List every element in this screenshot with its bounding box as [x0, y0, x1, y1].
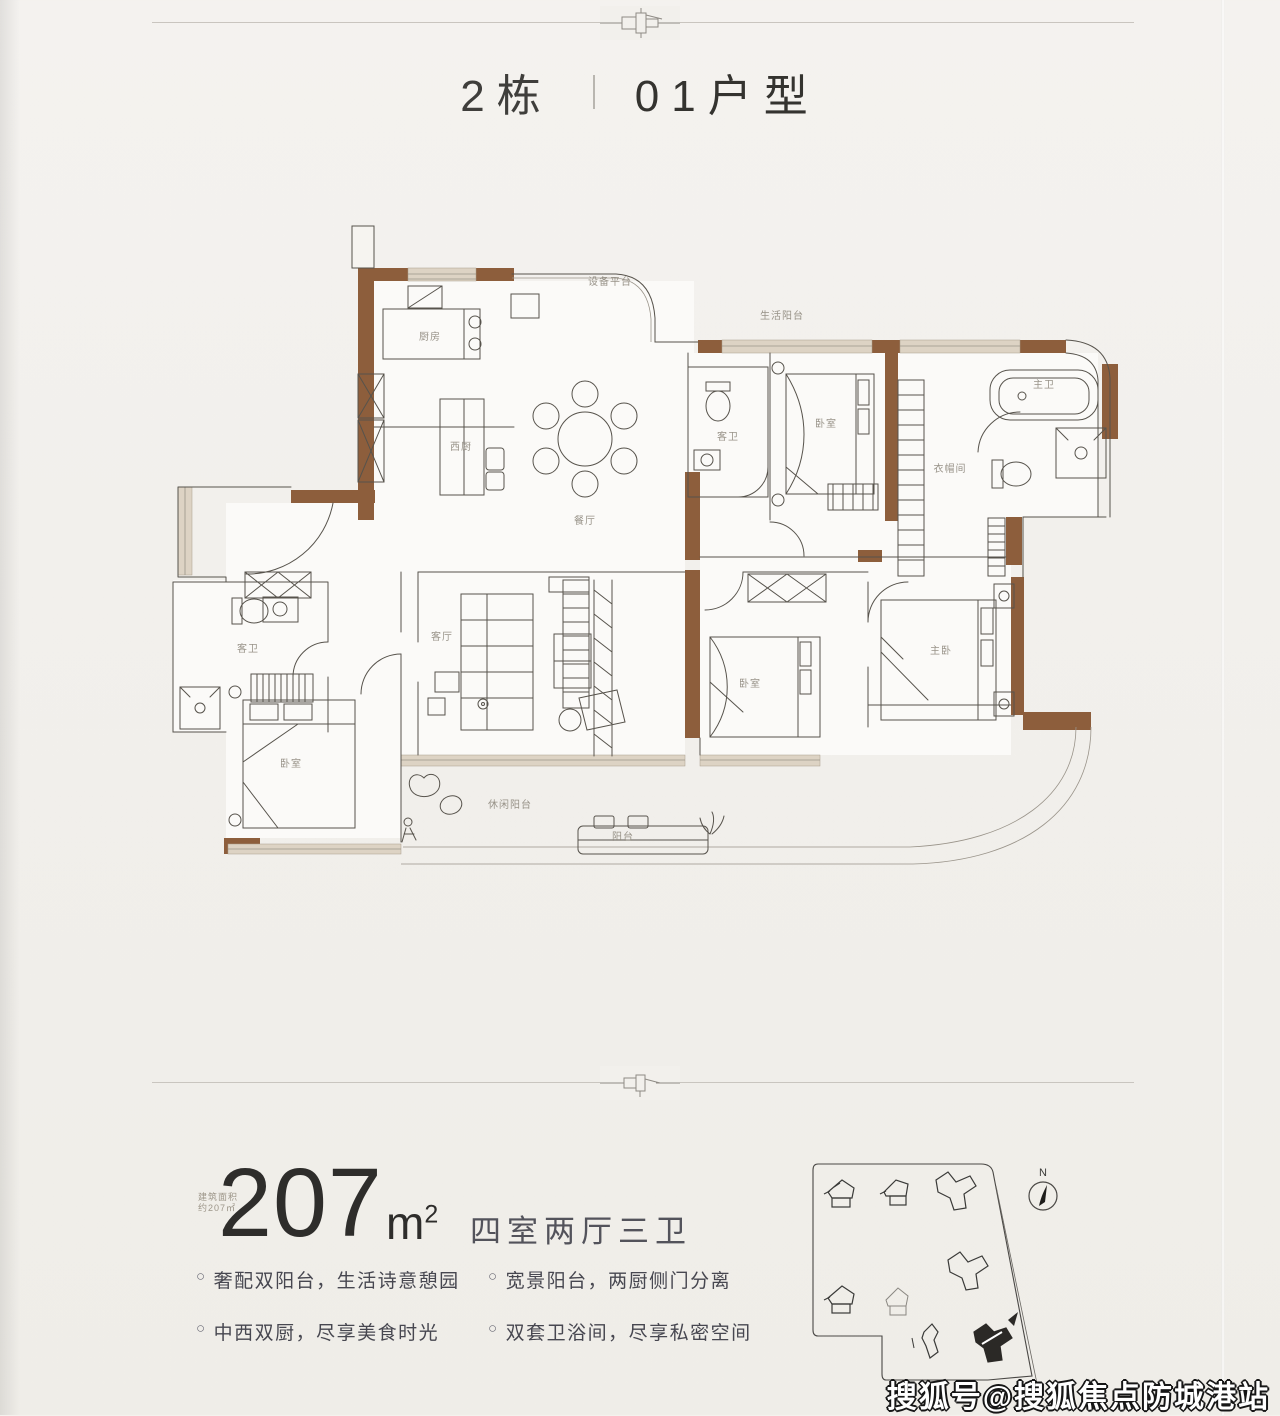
area-unit-sup: 2: [424, 1201, 438, 1229]
feature-item: ○ 中西双厨，尽享美食时光: [196, 1318, 488, 1345]
room-label: 卧室: [280, 757, 302, 770]
room-label: 餐厅: [574, 514, 596, 527]
feature-text: 宽景阳台，两厨侧门分离: [506, 1266, 732, 1293]
bottom-divider-ornament: [600, 1066, 680, 1100]
feature-list: ○ 奢配双阳台，生活诗意憩园 ○ 宽景阳台，两厨侧门分离 ○ 中西双厨，尽享美食…: [196, 1266, 806, 1345]
feature-text: 双套卫浴间，尽享私密空间: [506, 1318, 752, 1345]
site-buildings: [824, 1172, 1018, 1362]
feature-text: 中西双厨，尽享美食时光: [214, 1318, 440, 1345]
room-label: 阳台: [612, 830, 634, 843]
area-value: 207: [218, 1154, 383, 1251]
room-label: 衣帽间: [934, 462, 967, 475]
bullet-icon: ○: [196, 1318, 207, 1337]
building-icon: [948, 1252, 988, 1290]
bullet-icon: ○: [488, 1266, 499, 1285]
room-label: 客卫: [237, 642, 259, 655]
room-label: 主卧: [930, 644, 952, 657]
page-root: { "header": { "building": "2栋", "unit": …: [0, 0, 1280, 1415]
building-icon: [886, 1288, 908, 1315]
room-fills: [173, 281, 1098, 838]
room-layout-label: 四室两厅三卫: [470, 1206, 692, 1251]
page-edge-shadow: [0, 0, 20, 1415]
feature-item: ○ 宽景阳台，两厨侧门分离: [488, 1266, 806, 1293]
bullet-icon: ○: [196, 1266, 207, 1285]
room-label: 厨房: [419, 330, 441, 343]
bullet-icon: ○: [488, 1318, 499, 1337]
room-label: 客卫: [717, 430, 739, 443]
north-compass-icon: N: [1029, 1167, 1057, 1210]
area-unit: m2: [386, 1196, 438, 1250]
feature-item: ○ 双套卫浴间，尽享私密空间: [488, 1318, 806, 1345]
room-label: 休闲阳台: [488, 798, 532, 811]
top-divider-ornament: [600, 6, 680, 40]
north-label: N: [1039, 1167, 1047, 1179]
page-title: 2栋 01户型: [0, 60, 1280, 124]
title-separator: [593, 75, 595, 109]
building-icon-highlighted: [974, 1312, 1018, 1362]
building-icon: [922, 1324, 938, 1358]
building-icon: [824, 1180, 854, 1207]
building-icon: [824, 1286, 854, 1313]
room-label: 卧室: [739, 677, 761, 690]
room-label: 卧室: [815, 417, 837, 430]
feature-text: 奢配双阳台，生活诗意憩园: [214, 1266, 460, 1293]
unit-type-label: 01户型: [635, 60, 820, 124]
room-label: 主卫: [1033, 379, 1055, 391]
room-label: 设备平台: [588, 275, 632, 288]
building-icon: [880, 1180, 908, 1205]
building-label: 2栋: [460, 60, 552, 124]
floor-plan: 厨房设备平台生活阳台西厨餐厅客卫卧室衣帽间主卫客卫卧室客厅卧室主卧休闲阳台阳台: [158, 222, 1138, 894]
feature-item: ○ 奢配双阳台，生活诗意憩园: [196, 1266, 488, 1293]
room-label: 生活阳台: [760, 309, 804, 322]
area-unit-base: m: [386, 1197, 424, 1249]
watermark: 搜狐号@搜狐焦点防城港站: [887, 1372, 1270, 1416]
room-label: 西厨: [450, 441, 472, 453]
building-icon: [936, 1172, 976, 1210]
paper-fold-line: [1221, 0, 1225, 1415]
room-label: 客厅: [431, 630, 453, 643]
